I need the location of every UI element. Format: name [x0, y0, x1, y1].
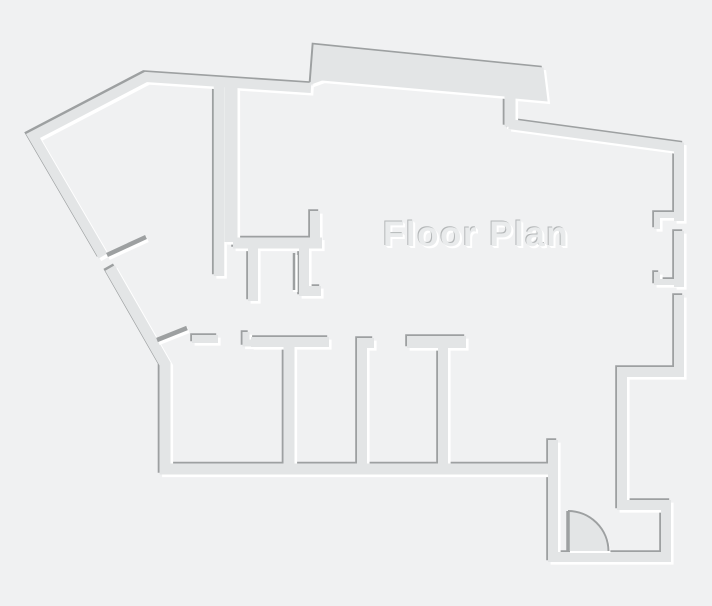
door-leaf-upper-left-highlight: [108, 239, 147, 257]
wall-exterior-left-lower: [108, 266, 551, 467]
wall-exterior-top-left: [31, 75, 309, 254]
floor-plan-svg: [0, 0, 712, 606]
wall-exterior-left-lower: [110, 268, 553, 469]
wall-exterior-left-lower: [113, 271, 556, 472]
wall-exterior-top-right: [509, 124, 679, 221]
wall-exterior-top-left: [33, 77, 311, 256]
window-notch-top: [657, 215, 676, 229]
floor-plan-title: Floor Plan: [383, 215, 569, 255]
door-leaf-upper-left: [107, 237, 146, 255]
floor-plan: Floor Plan: [0, 0, 712, 606]
wall-top-bump: [311, 45, 547, 127]
wall-fill-layer: [33, 45, 679, 557]
